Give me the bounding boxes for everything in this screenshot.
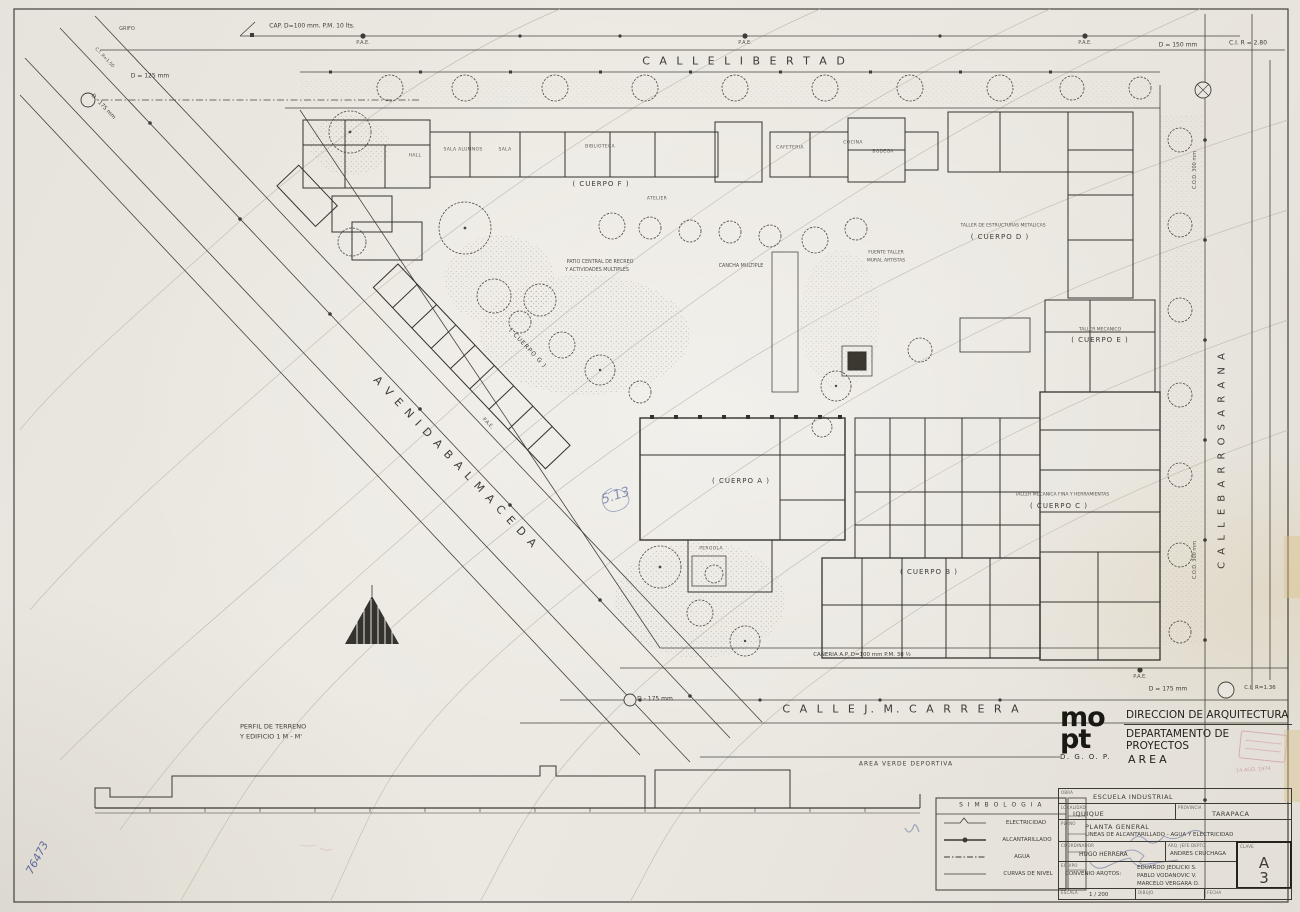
manhole-bottom-right <box>1218 682 1234 698</box>
field-value-plano1: PLANTA GENERAL <box>1085 823 1149 831</box>
field-value-arq-jefe: ANDRES CRUCHAGA <box>1170 851 1226 857</box>
title-direccion: DIRECCION DE ARQUITECTURA <box>1126 709 1288 721</box>
room-label-cafeteria: CAFETERIA <box>776 145 803 150</box>
title-divider <box>1124 724 1292 725</box>
label-cuerpo-a: ( CUERPO A ) <box>712 477 770 485</box>
annotation-ci-136: C.I. R=1.36 <box>1244 685 1275 691</box>
cell-plano: PLANO PLANTA GENERAL LINEAS DE ALCANTARI… <box>1058 819 1292 842</box>
room-label-atelier: ATELIER <box>647 196 667 201</box>
profile-caption-2: Y EDIFICIO 1 M - M' <box>240 733 302 740</box>
room-label-sala: SALA <box>499 147 512 152</box>
annotation-d175-bl: D - 175 mm <box>637 697 673 704</box>
cell-fecha: FECHA <box>1204 888 1292 900</box>
title-block: mo pt D. G. O. P. DIRECCION DE ARQUITECT… <box>1058 701 1292 900</box>
label-area-verde: AREA VERDE DEPORTIVA <box>859 762 953 769</box>
annotation-grifo: GRIFO <box>119 27 135 33</box>
room-label-pergola: PERGOLA <box>699 546 723 551</box>
legend-item-agua: AGUA <box>1014 854 1030 860</box>
annotation-pae-1: P.A.E. <box>356 41 370 47</box>
mop-logo-dgop: D. G. O. P. <box>1060 753 1122 761</box>
room-label-sala-alumnos: SALA ALUMNOS <box>443 147 482 152</box>
legend-item-electricidad: ELECTRICIDAD <box>1006 820 1046 826</box>
cell-dibujo: DIBUJO <box>1135 888 1205 900</box>
field-value-equipo-name1: EDUARDO JEDLICKI S. <box>1137 865 1197 871</box>
field-label-dibujo: DIBUJO <box>1138 890 1153 895</box>
stipple-gardens <box>300 80 1202 658</box>
label-cuerpo-c-title: TALLER MECANICA FINA Y HERRAMIENTAS <box>1015 492 1109 497</box>
annotation-cap-top: CAP. D=100 mm. P.M. 10 lts. <box>269 24 354 31</box>
field-label-escala: ESCALA <box>1061 890 1078 895</box>
legend-title: S I M B O L O G I A <box>959 803 1043 810</box>
street-label-barros-arana: C A L L E B A R R O S A R A N A <box>1216 351 1228 569</box>
label-cancha: CANCHA MULTIPLE <box>719 264 764 270</box>
label-cuerpo-d-title: TALLER DE ESTRUCTURAS METALICAS <box>960 223 1045 228</box>
field-value-equipo-prefix: CONVENIO ARQTOS: <box>1065 871 1121 877</box>
label-patio-central-1: PATIO CENTRAL DE RECREO <box>567 260 634 266</box>
label-cuerpo-e-title: TALLER MECANICO <box>1079 327 1121 332</box>
field-value-escala: 1 / 200 <box>1089 892 1108 898</box>
room-label-cocina: COCINA <box>843 140 862 145</box>
field-value-clave-number: 3 <box>1259 869 1269 887</box>
cell-coordinador: COORDINADOR HUGO HERRERA <box>1058 841 1166 862</box>
annotation-cod300-1: C.O.D. 300 mm <box>1193 151 1199 189</box>
field-label-provincia: PROVINCIA <box>1178 805 1202 810</box>
field-value-obra: ESCUELA INDUSTRIAL <box>1093 793 1173 801</box>
street-label-libertad: C A L L E L I B E R T A D <box>642 56 848 69</box>
manhole-bottom-left <box>624 694 636 706</box>
field-value-localidad: IQUIQUE <box>1073 810 1104 818</box>
field-label-clave: CLAVE <box>1240 844 1254 849</box>
annotation-ci-280: C.I. R = 2.80 <box>1229 41 1267 48</box>
label-fuente-2: MURAL ARTISTAS <box>867 258 905 263</box>
field-value-coordinador: HUGO HERRERA <box>1079 851 1128 858</box>
label-cuerpo-f: ( CUERPO F ) <box>572 180 629 188</box>
room-label-hall: HALL <box>409 153 422 158</box>
annotation-d175-bottom: D = 175 mm <box>1149 687 1188 694</box>
field-label-fecha: FECHA <box>1207 890 1221 895</box>
terrain-profile <box>95 766 920 813</box>
profile-caption-1: PERFIL DE TERRENO <box>240 723 306 730</box>
label-cuerpo-c: ( CUERPO C ) <box>1030 502 1088 510</box>
annotation-cod300-2: C.O.D. 300 mm <box>1193 541 1199 579</box>
field-value-plano2: LINEAS DE ALCANTARILLADO - AGUA Y ELECTR… <box>1085 832 1233 838</box>
label-cuerpo-e: ( CUERPO E ) <box>1071 336 1129 344</box>
annotation-pae-2: P.A.E. <box>738 41 752 47</box>
annotation-d125: D = 125 mm <box>131 74 170 81</box>
label-cuerpo-d: ( CUERPO D ) <box>971 233 1030 241</box>
annotation-pae-5: P.A.E. <box>1133 675 1147 681</box>
legend-item-alcantarillado: ALCANTARILLADO <box>1002 837 1051 843</box>
legend-item-curvas: CURVAS DE NIVEL <box>1003 871 1052 877</box>
legend-symbol-electricidad <box>944 818 986 823</box>
cell-arq-jefe: ARQ. JEFE DEPTO. ANDRES CRUCHAGA <box>1165 841 1237 862</box>
mop-logo: mo pt D. G. O. P. <box>1060 707 1122 761</box>
field-label-obra: OBRA <box>1061 790 1073 795</box>
field-label-plano: PLANO <box>1061 821 1076 826</box>
room-label-bodega: BODEGA <box>872 149 893 154</box>
cell-equipo: EQUIPO CONVENIO ARQTOS: EDUARDO JEDLICKI… <box>1058 861 1237 889</box>
section-triangle <box>345 585 399 644</box>
field-value-provincia: TARAPACA <box>1212 810 1249 818</box>
cell-obra: OBRA ESCUELA INDUSTRIAL <box>1058 788 1292 804</box>
label-fuente-1: FUENTE TALLER <box>868 250 904 255</box>
cell-localidad: LOCALIDAD IQUIQUE <box>1058 803 1176 820</box>
title-area: AREA <box>1128 753 1170 766</box>
field-label-arq-jefe: ARQ. JEFE DEPTO. <box>1168 843 1207 848</box>
room-label-biblioteca: BIBLIOTECA <box>585 144 615 149</box>
annotation-pae-3: P.A.E. <box>1078 41 1092 47</box>
cell-clave: CLAVE A 3 <box>1236 841 1292 889</box>
label-patio-central-2: Y ACTIVIDADES MULTIPLES <box>565 268 629 274</box>
label-cuerpo-b: ( CUERPO B ) <box>900 568 958 576</box>
field-value-equipo-name3: MARCELO VERGARA O. <box>1137 881 1199 887</box>
field-value-equipo-name2: PABLO VODANOVIC V. <box>1137 873 1196 879</box>
title-departamento: DEPARTAMENTO DE PROYECTOS <box>1126 728 1292 752</box>
scanned-site-plan-sheet: C A L L E L I B E R T A D A V E N I D A … <box>0 0 1300 912</box>
legend-symbol-alcantarillado <box>944 838 986 842</box>
field-label-equipo: EQUIPO <box>1061 863 1078 868</box>
stamp-date: 14 AGO. 1974 <box>1236 766 1271 774</box>
cell-escala: ESCALA 1 / 200 <box>1058 888 1136 900</box>
field-label-coordinador: COORDINADOR <box>1061 843 1094 848</box>
street-label-carrera: C A L L E J. M. C A R R E R A <box>782 704 1021 717</box>
cell-provincia: PROVINCIA TARAPACA <box>1175 803 1292 820</box>
annotation-caneria-ap: CAÑERIA A.P. D=100 mm P.M. 38 ½ <box>813 652 911 658</box>
annotation-d150: D = 150 mm <box>1159 43 1198 50</box>
